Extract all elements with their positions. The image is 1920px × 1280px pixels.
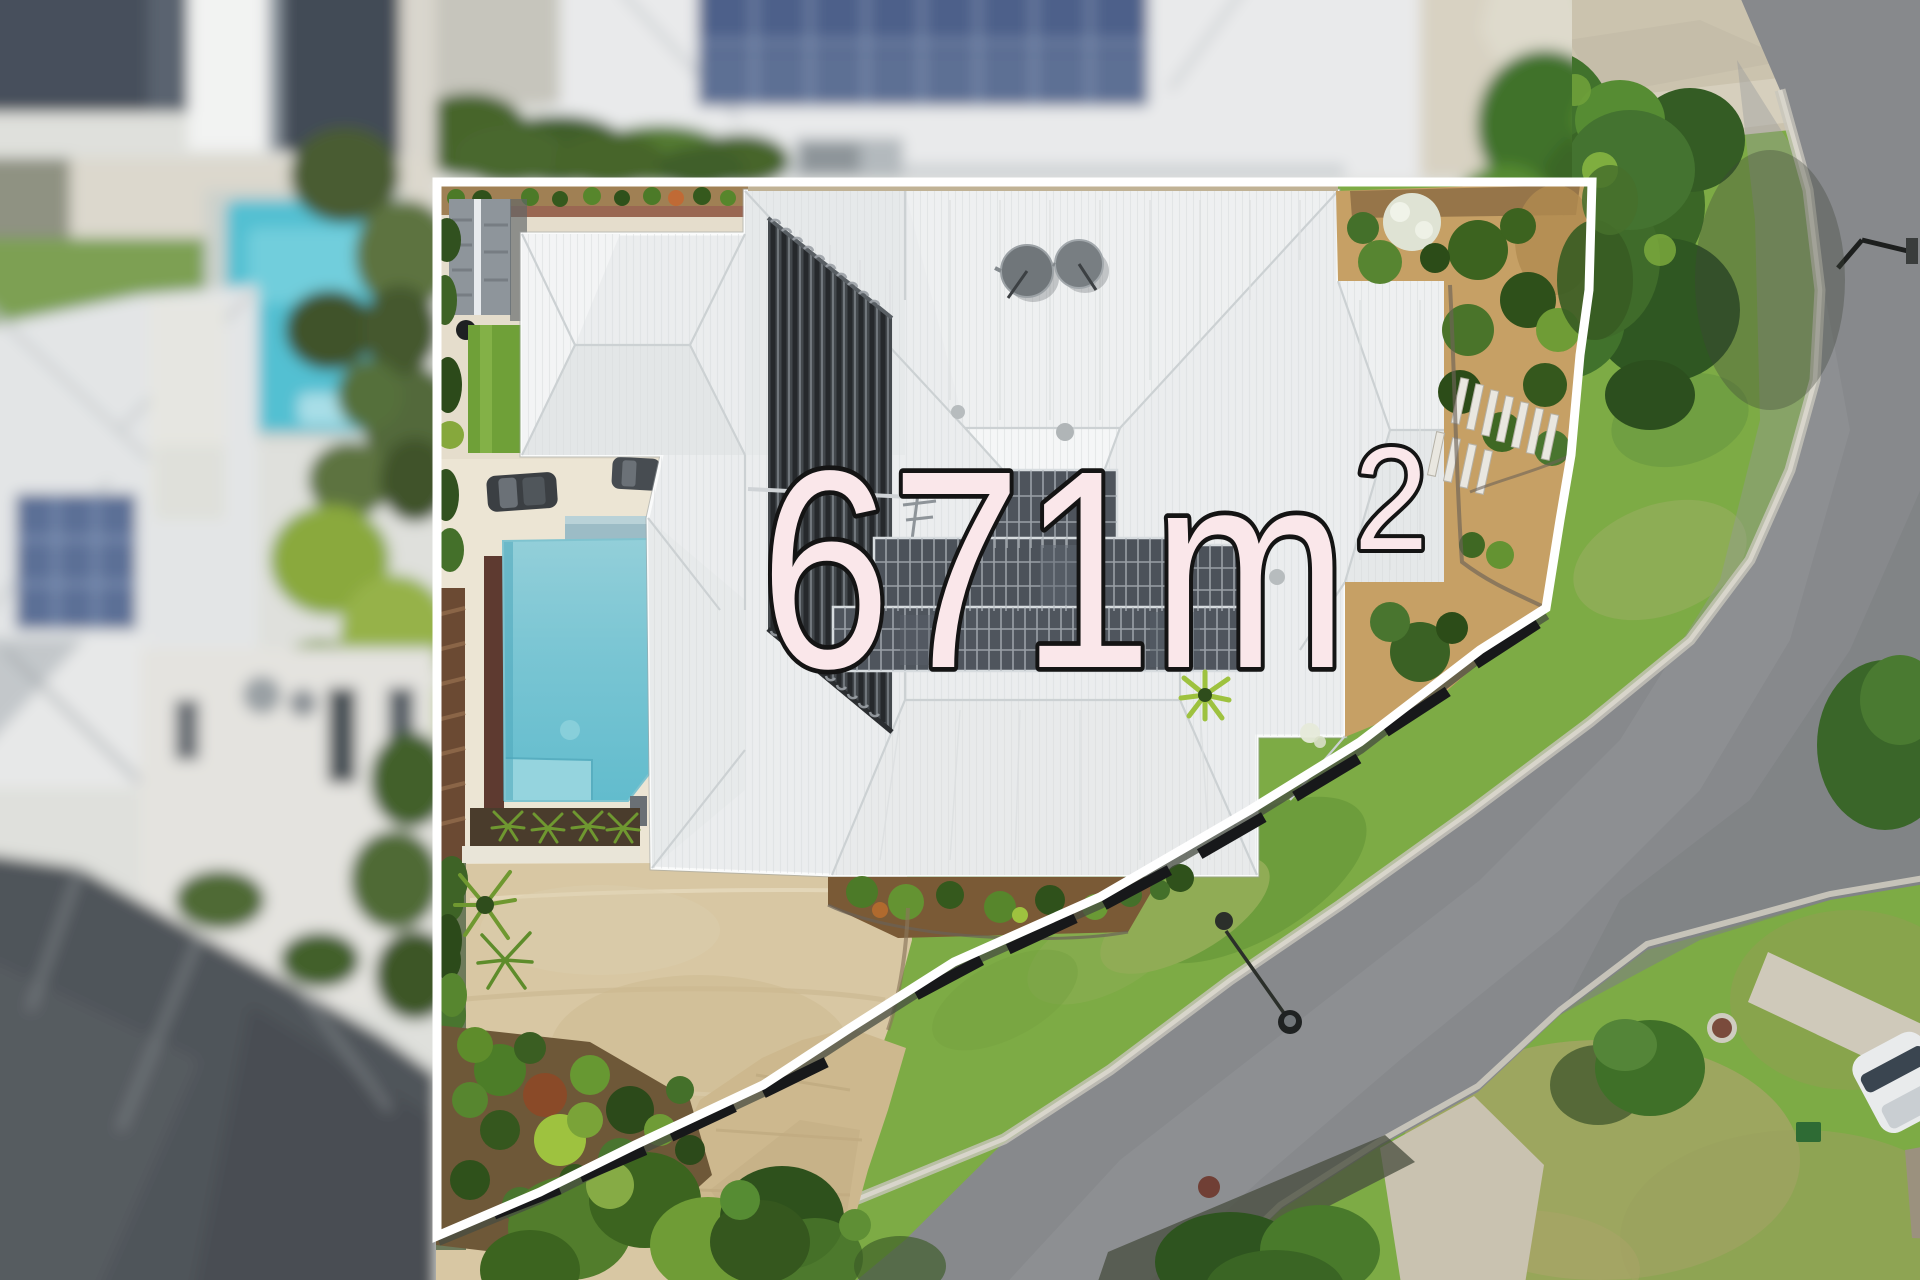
svg-text:2: 2: [1354, 417, 1428, 580]
svg-text:671m: 671m: [760, 412, 1348, 727]
